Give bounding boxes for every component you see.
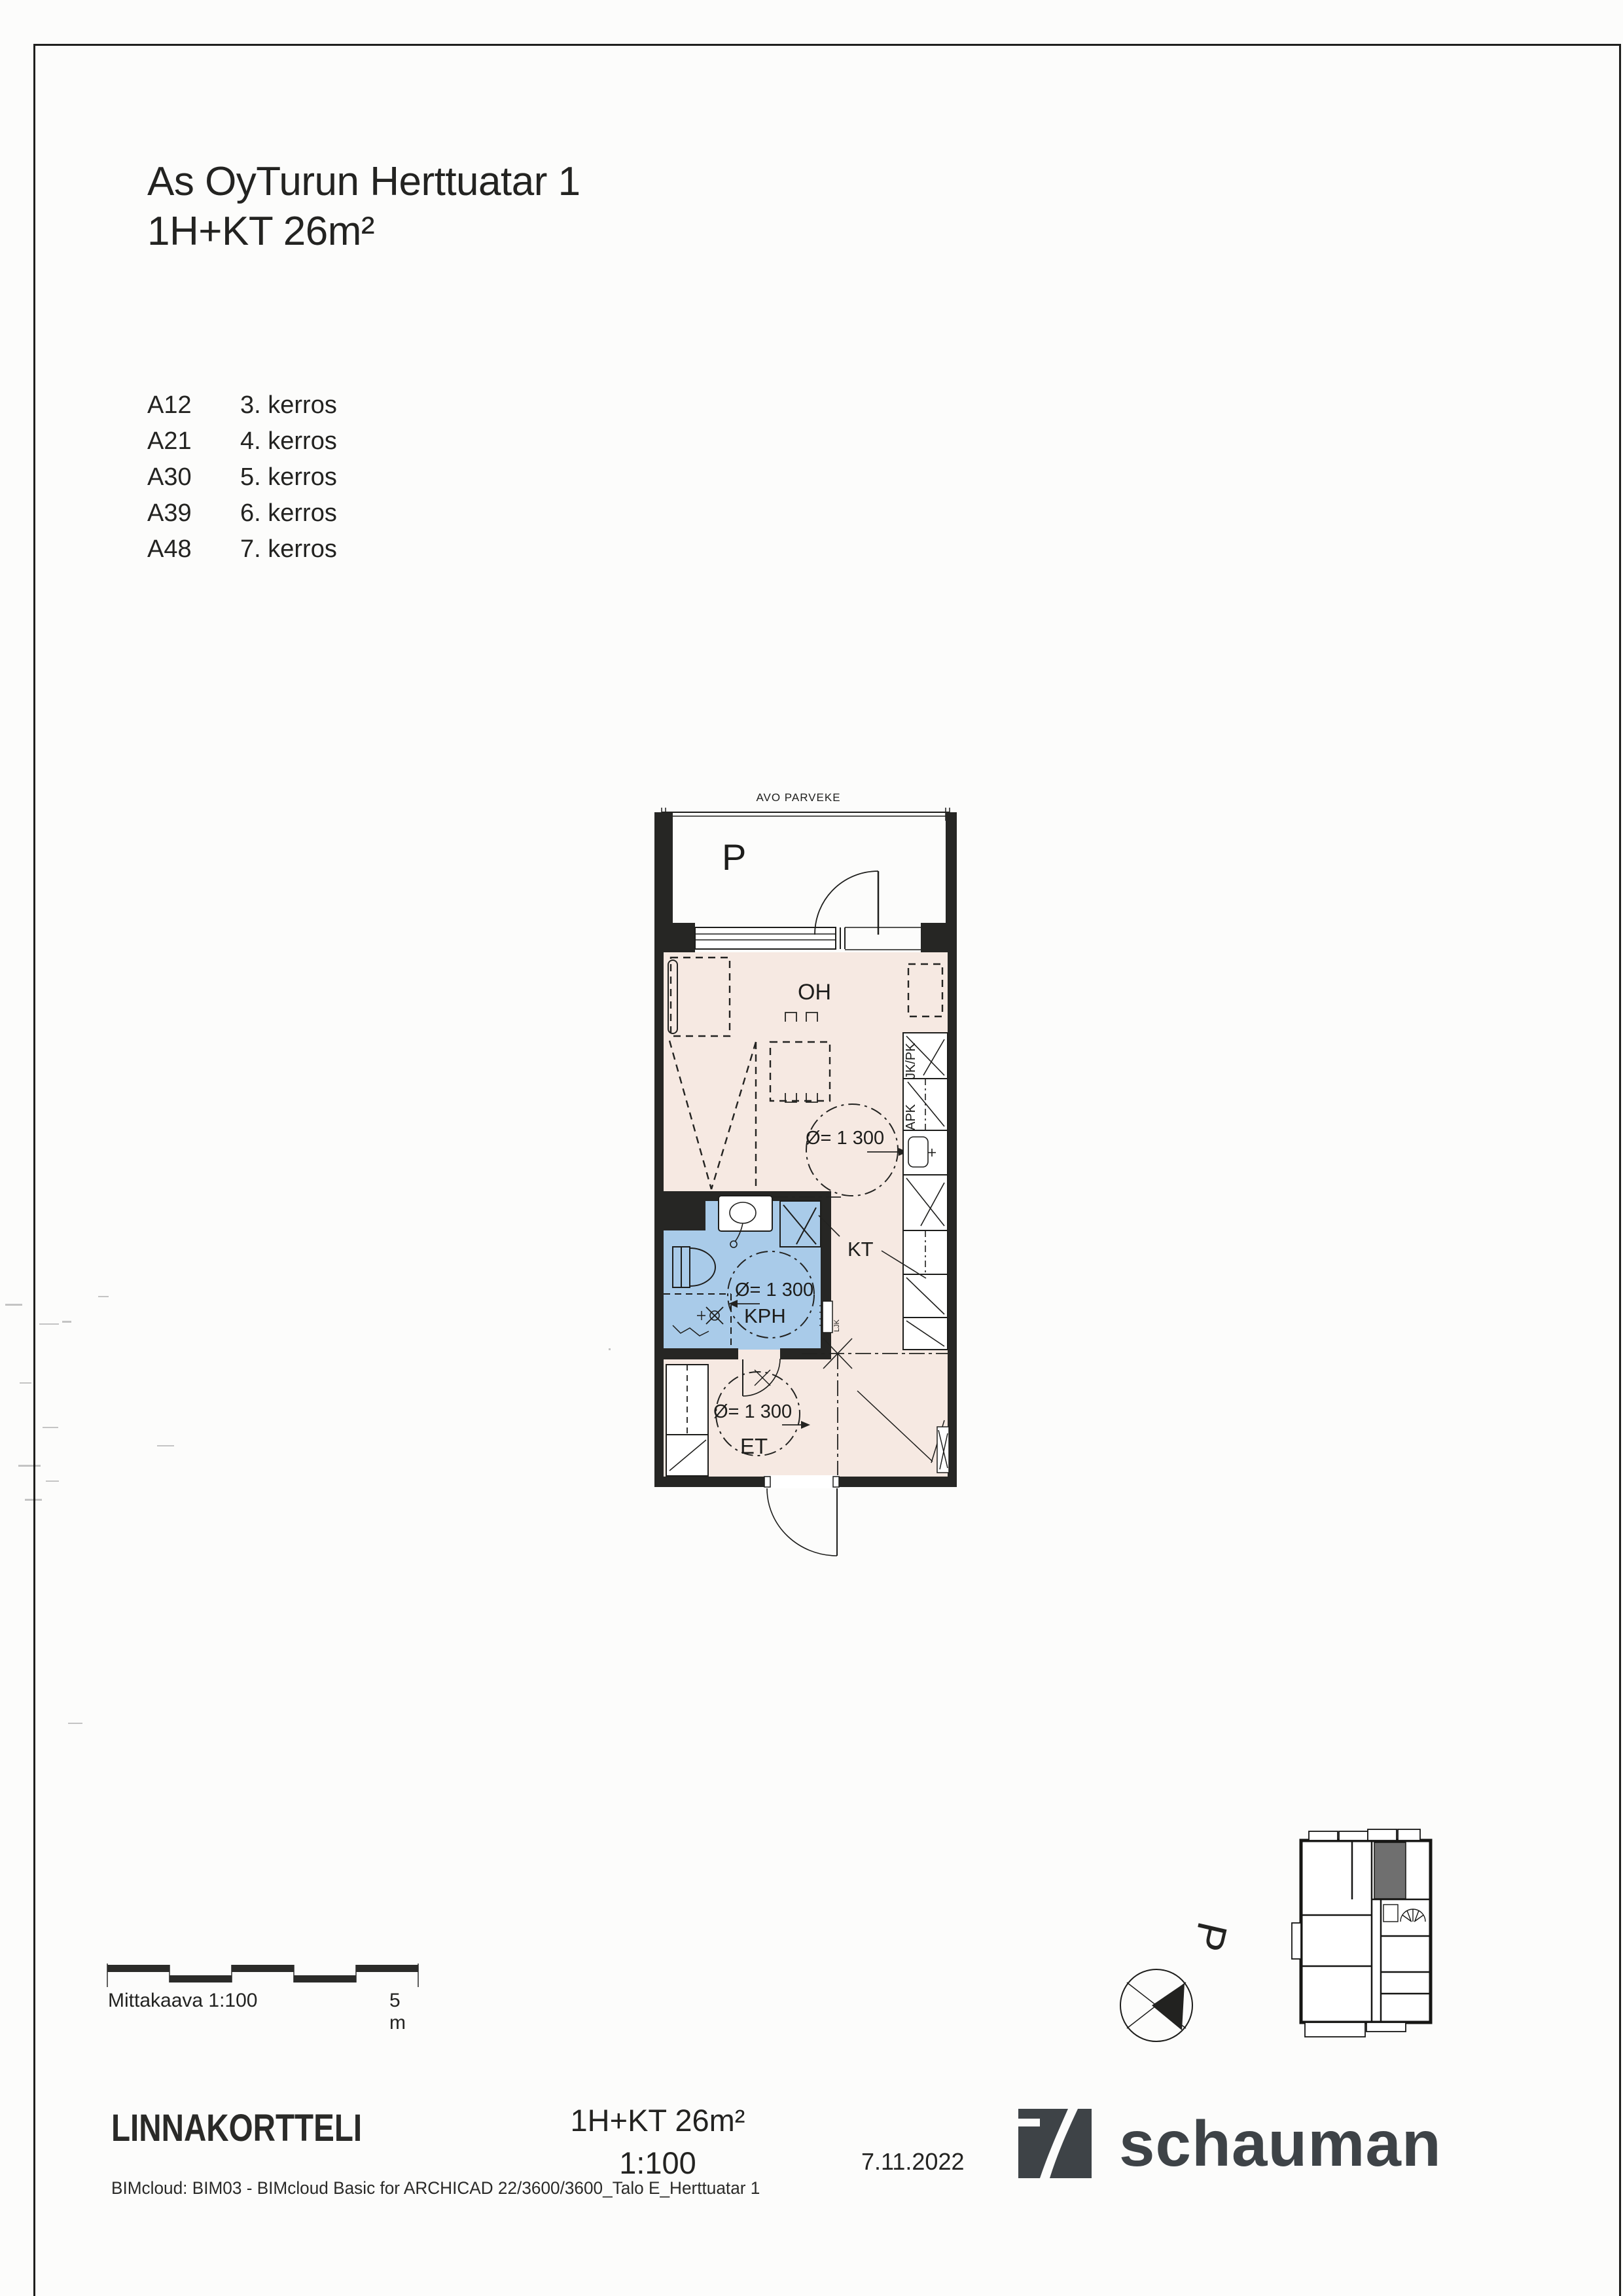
north-label: P bbox=[1183, 1918, 1237, 1956]
apartment-row: A12 3. kerros bbox=[147, 387, 337, 423]
window-band bbox=[654, 923, 957, 952]
company-logo-wordmark: schauman bbox=[1119, 2109, 1442, 2178]
drawing-scale: 1:100 bbox=[563, 2145, 753, 2181]
north-compass bbox=[1116, 1964, 1200, 2047]
scale-bar-end-label: 5 m bbox=[389, 1990, 419, 2034]
apartment-row: A21 4. kerros bbox=[147, 423, 337, 459]
page-border-left bbox=[33, 44, 35, 2296]
floor-plan-drawing bbox=[651, 789, 960, 1571]
balcony-door bbox=[815, 871, 878, 935]
scale-bar-drawing bbox=[107, 1958, 419, 1988]
page-border-top bbox=[33, 44, 1621, 46]
document-title-line1: As OyTurun Herttuatar 1 bbox=[147, 157, 580, 207]
apartment-floor: 3. kerros bbox=[240, 387, 337, 423]
floorplan-sheet: As OyTurun Herttuatar 1 1H+KT 26m² A12 3… bbox=[0, 0, 1623, 2296]
apartment-floor: 5. kerros bbox=[240, 459, 337, 495]
apartment-code: A12 bbox=[147, 387, 240, 423]
entry-wardrobe bbox=[666, 1365, 708, 1476]
entry-label: ET bbox=[740, 1434, 768, 1459]
turning-circle-note-et: Ø= 1 300 bbox=[713, 1401, 792, 1423]
scale-bar-label: Mittakaava 1:100 bbox=[108, 1990, 257, 2012]
living-room-label: OH bbox=[798, 980, 831, 1005]
compass-drawing bbox=[1116, 1964, 1200, 2047]
apartment-type: 1H+KT 26m² bbox=[563, 2102, 753, 2138]
logo-mark-icon bbox=[1018, 2109, 1092, 2178]
entry-door bbox=[764, 1475, 839, 1556]
document-title-line2: 1H+KT 26m² bbox=[147, 207, 580, 257]
bathroom-label: KPH bbox=[744, 1304, 786, 1328]
bim-info: BIMcloud: BIM03 - BIMcloud Basic for ARC… bbox=[111, 2178, 760, 2198]
apartment-code: A48 bbox=[147, 531, 240, 567]
balcony-label: P bbox=[722, 836, 746, 878]
key-plan-highlighted-unit bbox=[1374, 1842, 1406, 1899]
apartment-floor: 7. kerros bbox=[240, 531, 337, 567]
apartment-floor: 4. kerros bbox=[240, 423, 337, 459]
apartment-code: A30 bbox=[147, 459, 240, 495]
turning-circle-note-kph: Ø= 1 300 bbox=[735, 1280, 813, 1301]
apartment-row: A30 5. kerros bbox=[147, 459, 337, 495]
apartment-code: A39 bbox=[147, 495, 240, 531]
key-plan bbox=[1281, 1825, 1442, 2044]
apartment-row: A48 7. kerros bbox=[147, 531, 337, 567]
document-title: As OyTurun Herttuatar 1 1H+KT 26m² bbox=[147, 157, 580, 257]
balcony-header-label: AVO PARVEKE bbox=[749, 791, 847, 804]
drawing-date: 7.11.2022 bbox=[861, 2148, 964, 2176]
company-logo: schauman bbox=[1018, 2109, 1442, 2178]
apartment-floor: 6. kerros bbox=[240, 495, 337, 531]
scale-bar: Mittakaava 1:100 5 m bbox=[107, 1958, 419, 2017]
utility-cabinet-label: LJK bbox=[833, 1304, 841, 1332]
apartment-type-block: 1H+KT 26m² 1:100 bbox=[563, 2102, 753, 2181]
apartment-code: A21 bbox=[147, 423, 240, 459]
fridge-freezer-label: JK/PK bbox=[904, 1033, 919, 1079]
page-border-right bbox=[1619, 44, 1621, 2296]
turning-circle-note-oh: Ø= 1 300 bbox=[806, 1128, 884, 1149]
floor-plan: AVO PARVEKE P OH Ø= 1 300 Ø= 1 300 KPH K… bbox=[651, 789, 960, 1571]
project-name: LINNAKORTTELI bbox=[111, 2106, 362, 2150]
dishwasher-label: APK bbox=[904, 1082, 919, 1130]
kitchen-label: KT bbox=[847, 1238, 874, 1261]
apartment-row: A39 6. kerros bbox=[147, 495, 337, 531]
balcony bbox=[654, 808, 957, 929]
key-plan-drawing bbox=[1281, 1825, 1442, 2044]
apartment-list: A12 3. kerros A21 4. kerros A30 5. kerro… bbox=[147, 387, 337, 567]
